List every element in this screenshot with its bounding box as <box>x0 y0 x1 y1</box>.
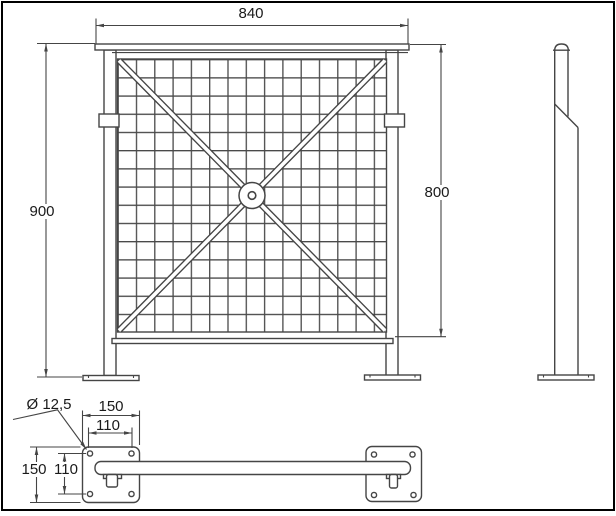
dim-label-150-depth: 150 <box>19 462 49 477</box>
dim-label-900: 900 <box>26 204 58 219</box>
technical-drawing-canvas: 840 900 800 Ø 12,5 150 110 150 110 <box>0 0 616 516</box>
right-post <box>386 50 398 376</box>
center-hub <box>239 183 265 209</box>
left-post <box>104 50 116 376</box>
front-view <box>83 44 421 381</box>
right-connector-block <box>385 114 405 127</box>
dim-label-110-pitch-v: 110 <box>52 462 80 477</box>
plan-view <box>83 447 422 503</box>
dim-label-800: 800 <box>421 185 453 200</box>
side-view <box>538 44 594 380</box>
railing-drawing <box>0 0 616 516</box>
left-base-plate <box>83 376 139 381</box>
top-rail <box>95 44 409 50</box>
dim-label-150-width: 150 <box>93 399 129 414</box>
right-base-plate <box>365 375 421 380</box>
side-base-plate <box>538 375 594 380</box>
dim-label-110-pitch-h: 110 <box>90 418 126 433</box>
post-cap <box>555 44 569 50</box>
dim-label-hole-diameter: Ø 12,5 <box>21 397 77 412</box>
leader-hole-diameter <box>13 410 87 450</box>
left-connector-block <box>99 114 119 127</box>
dim-label-840: 840 <box>231 6 271 21</box>
bottom-rail <box>112 339 393 344</box>
plan-bottom-rail <box>95 462 411 475</box>
panel-bracket-chamfer <box>555 104 578 128</box>
dim-840 <box>96 19 408 44</box>
